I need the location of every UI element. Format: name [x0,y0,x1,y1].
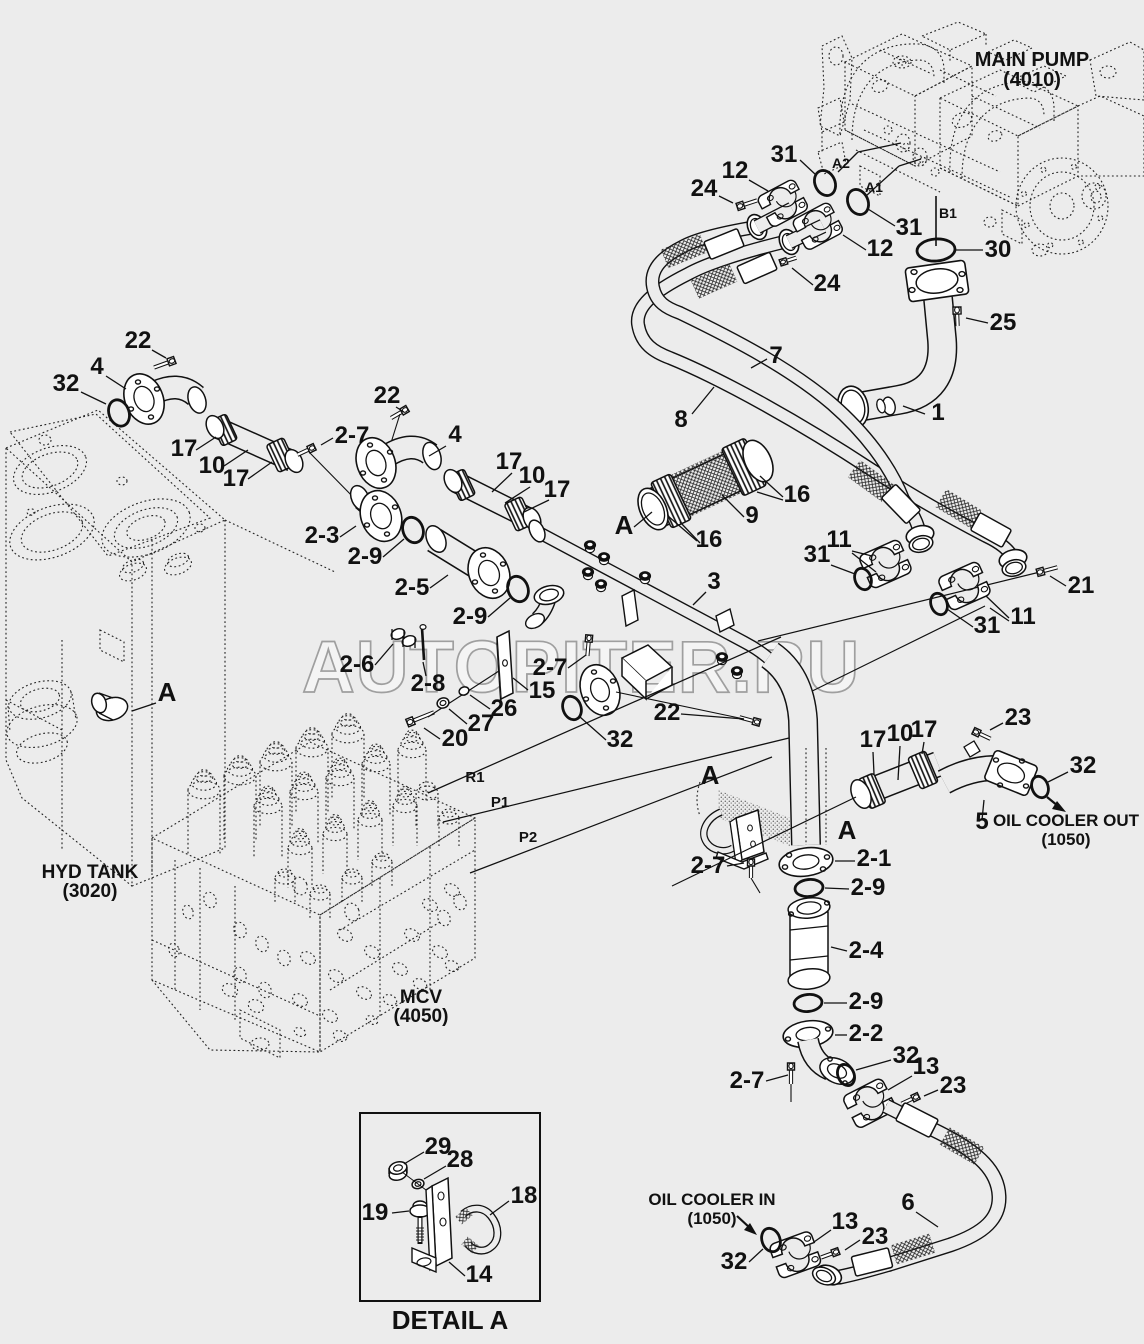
svg-text:32: 32 [53,370,80,397]
svg-text:(1050): (1050) [1041,830,1090,849]
svg-text:32: 32 [1070,752,1097,779]
svg-text:32: 32 [607,726,634,753]
svg-text:18: 18 [511,1182,538,1209]
svg-text:2-4: 2-4 [849,937,884,964]
svg-text:21: 21 [1068,572,1095,599]
svg-text:22: 22 [374,382,401,409]
svg-text:24: 24 [691,175,718,202]
svg-text:2-1: 2-1 [857,845,892,872]
svg-text:15: 15 [529,677,556,704]
svg-text:25: 25 [990,309,1017,336]
svg-text:1: 1 [931,399,944,426]
svg-text:2-9: 2-9 [851,874,886,901]
svg-text:4: 4 [448,421,462,448]
svg-text:2-6: 2-6 [340,651,375,678]
svg-text:2-8: 2-8 [411,670,446,697]
svg-text:28: 28 [447,1146,474,1173]
svg-text:(3020): (3020) [63,881,118,902]
svg-text:10: 10 [199,452,226,479]
svg-text:4: 4 [90,353,104,380]
svg-text:A: A [615,510,634,540]
svg-text:3: 3 [707,568,720,595]
svg-text:13: 13 [832,1208,859,1235]
svg-text:17: 17 [860,726,887,753]
svg-text:OIL COOLER OUT: OIL COOLER OUT [993,811,1140,830]
svg-text:10: 10 [887,720,914,747]
svg-text:12: 12 [867,235,894,262]
svg-text:16: 16 [784,481,811,508]
svg-text:A1: A1 [865,179,883,195]
svg-text:(4010): (4010) [1003,69,1061,91]
svg-text:2-9: 2-9 [453,603,488,630]
svg-text:A: A [158,677,177,707]
svg-text:HYD TANK: HYD TANK [42,862,139,883]
svg-text:12: 12 [722,157,749,184]
svg-text:14: 14 [466,1261,493,1288]
svg-text:23: 23 [940,1072,967,1099]
svg-text:2-3: 2-3 [305,522,340,549]
svg-text:17: 17 [171,435,198,462]
svg-text:(4050): (4050) [394,1006,449,1027]
svg-text:8: 8 [674,406,687,433]
svg-text:OIL COOLER IN: OIL COOLER IN [648,1190,775,1209]
svg-text:MAIN PUMP: MAIN PUMP [975,49,1089,71]
svg-text:17: 17 [544,476,571,503]
svg-text:22: 22 [654,699,681,726]
svg-text:31: 31 [896,214,923,241]
svg-text:2-7: 2-7 [730,1067,765,1094]
svg-text:26: 26 [491,695,518,722]
svg-text:20: 20 [442,725,469,752]
svg-text:13: 13 [913,1053,940,1080]
svg-text:A: A [701,760,720,790]
svg-text:2-9: 2-9 [849,988,884,1015]
svg-text:23: 23 [862,1223,889,1250]
svg-text:31: 31 [771,141,798,168]
svg-text:2-2: 2-2 [849,1020,884,1047]
svg-text:2-7: 2-7 [533,654,568,681]
svg-text:23: 23 [1005,704,1032,731]
svg-text:16: 16 [696,526,723,553]
svg-text:DETAIL A: DETAIL A [392,1305,509,1335]
svg-text:31: 31 [804,541,831,568]
svg-text:11: 11 [1010,603,1035,630]
svg-text:7: 7 [769,342,782,369]
svg-text:17: 17 [223,465,250,492]
svg-text:17: 17 [911,716,938,743]
svg-text:R1: R1 [465,769,484,786]
svg-text:22: 22 [125,327,152,354]
svg-text:10: 10 [519,462,546,489]
svg-text:32: 32 [721,1248,748,1275]
svg-text:19: 19 [362,1199,389,1226]
svg-text:2-9: 2-9 [348,543,383,570]
svg-text:30: 30 [985,236,1012,263]
svg-text:31: 31 [974,612,1001,639]
svg-text:24: 24 [814,270,841,297]
svg-text:6: 6 [901,1189,914,1216]
svg-text:P2: P2 [519,829,537,846]
svg-text:5: 5 [975,808,988,835]
svg-text:MCV: MCV [400,987,443,1008]
svg-text:9: 9 [745,502,758,529]
svg-text:(1050): (1050) [687,1209,736,1228]
svg-text:P1: P1 [491,794,509,811]
svg-text:A: A [838,815,857,845]
svg-text:A2: A2 [832,155,850,171]
svg-text:2-5: 2-5 [395,574,430,601]
svg-text:B1: B1 [939,205,957,221]
